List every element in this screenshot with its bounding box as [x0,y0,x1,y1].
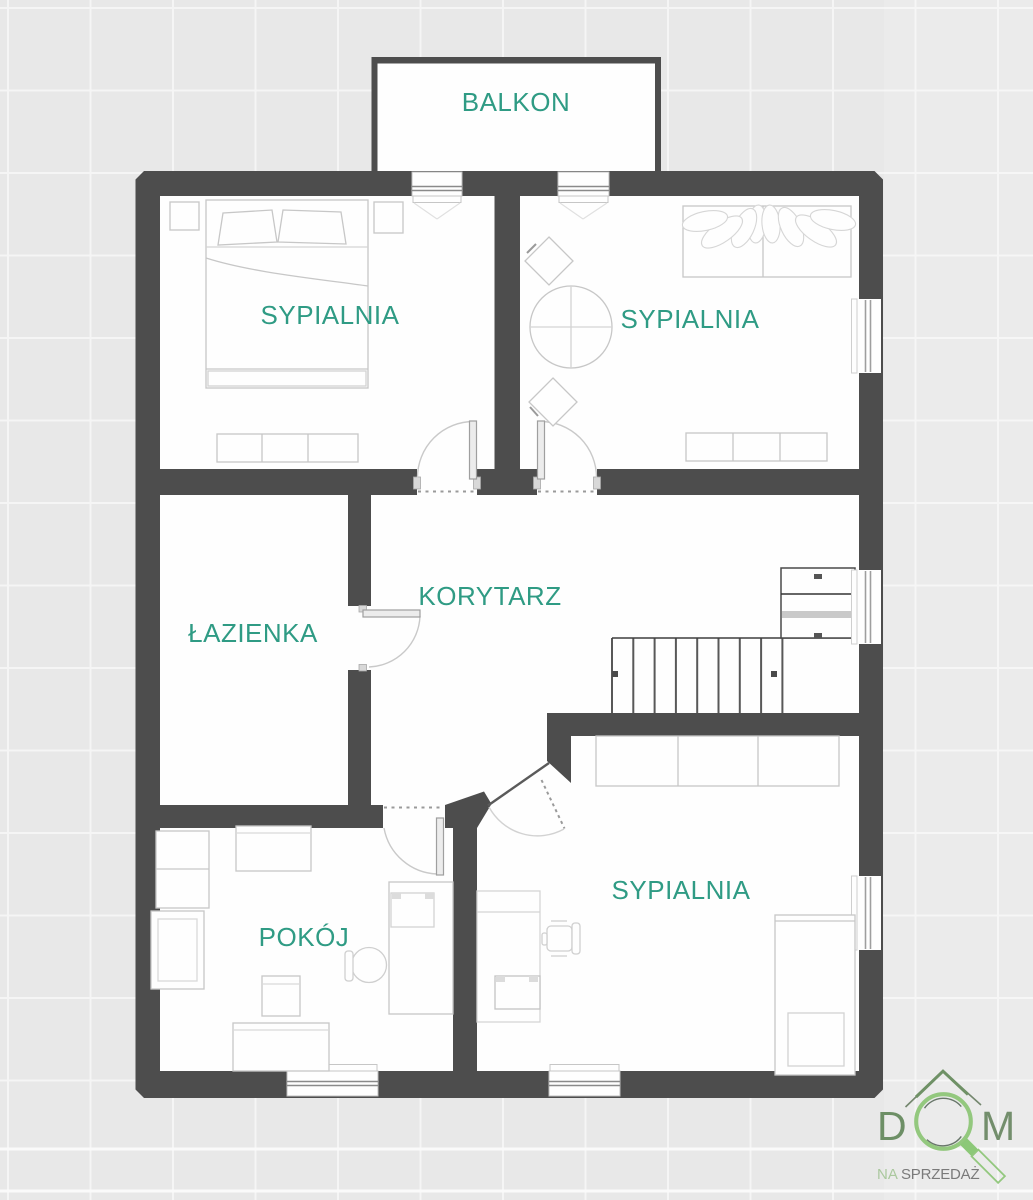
svg-text:SYPIALNIA: SYPIALNIA [621,304,760,334]
svg-text:POKÓJ: POKÓJ [259,922,350,952]
svg-text:M: M [981,1103,1015,1149]
svg-text:NA: NA [877,1166,898,1183]
svg-text:SYPIALNIA: SYPIALNIA [261,300,400,330]
svg-text:D: D [877,1103,907,1149]
svg-text:SPRZEDAŻ: SPRZEDAŻ [901,1165,979,1183]
svg-text:ŁAZIENKA: ŁAZIENKA [188,618,318,648]
svg-text:KORYTARZ: KORYTARZ [418,581,561,611]
svg-text:BALKON: BALKON [462,87,571,117]
svg-text:SYPIALNIA: SYPIALNIA [612,875,751,905]
